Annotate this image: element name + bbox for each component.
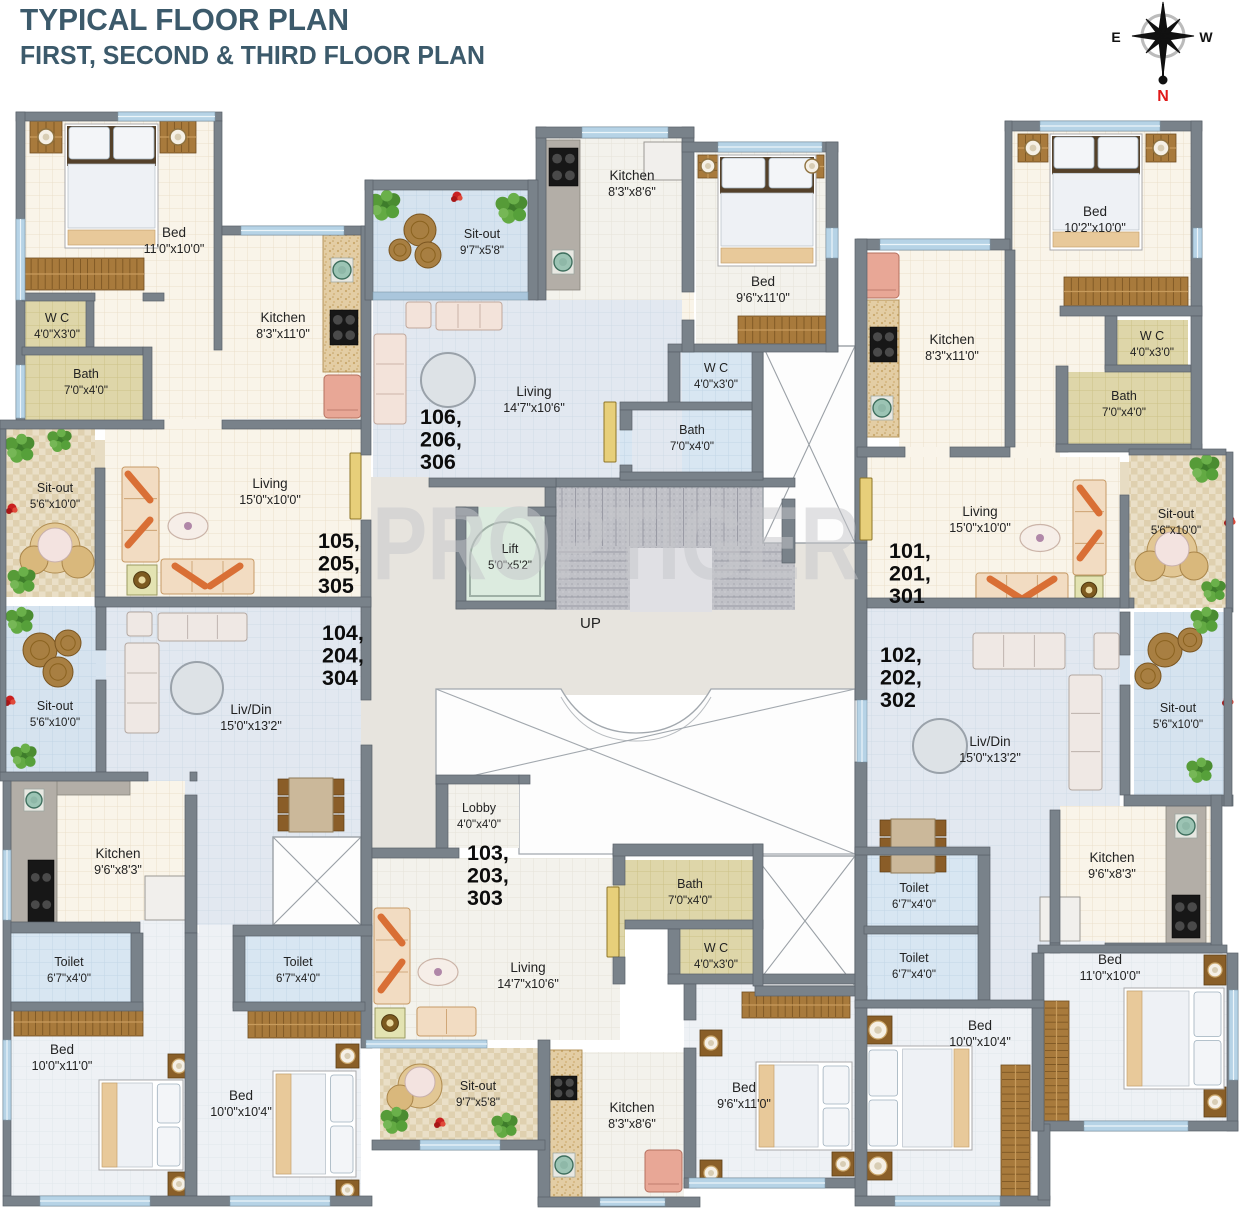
svg-text:15'0"x13'2": 15'0"x13'2"	[709, 791, 771, 805]
svg-text:4'0"x3'0": 4'0"x3'0"	[694, 379, 738, 391]
svg-text:9'6"x8'3": 9'6"x8'3"	[94, 863, 142, 877]
svg-text:Bed: Bed	[1098, 952, 1122, 967]
svg-text:9'6"x11'0": 9'6"x11'0"	[736, 291, 790, 305]
svg-text:103,: 103,	[467, 841, 509, 865]
svg-text:Kitchen: Kitchen	[609, 168, 654, 183]
svg-text:10'2"x10'0": 10'2"x10'0"	[1064, 221, 1126, 235]
svg-text:Bed: Bed	[162, 225, 186, 240]
svg-text:N: N	[1157, 88, 1169, 105]
svg-text:101,: 101,	[889, 539, 931, 563]
svg-text:W: W	[1199, 29, 1213, 45]
svg-text:15'0"x13'2": 15'0"x13'2"	[959, 751, 1021, 765]
svg-text:8'3"x8'6": 8'3"x8'6"	[608, 1117, 656, 1131]
svg-text:6'7"x4'0": 6'7"x4'0"	[892, 969, 936, 981]
svg-text:7'0"x4'0": 7'0"x4'0"	[1102, 407, 1146, 419]
svg-text:Toilet: Toilet	[899, 951, 929, 965]
svg-text:7'0"x4'0": 7'0"x4'0"	[64, 385, 108, 397]
svg-text:W C: W C	[1140, 329, 1164, 343]
svg-text:4'0"x3'0": 4'0"x3'0"	[694, 959, 738, 971]
svg-text:9'6"x11'0": 9'6"x11'0"	[717, 1097, 771, 1111]
svg-text:W C: W C	[704, 941, 728, 955]
svg-text:4'0"x3'0": 4'0"x3'0"	[1130, 347, 1174, 359]
svg-text:206,: 206,	[420, 428, 462, 452]
svg-text:9'7"x5'8": 9'7"x5'8"	[460, 245, 504, 257]
svg-text:106,: 106,	[420, 405, 462, 429]
svg-text:Liv/Din: Liv/Din	[719, 774, 760, 789]
svg-text:9'6"x8'3": 9'6"x8'3"	[1088, 867, 1136, 881]
svg-text:Kitchen: Kitchen	[260, 310, 305, 325]
svg-text:303: 303	[467, 886, 503, 910]
svg-text:15'0"x10'0": 15'0"x10'0"	[949, 521, 1011, 535]
svg-text:Toilet: Toilet	[54, 955, 84, 969]
svg-text:15'0"x10'0": 15'0"x10'0"	[239, 493, 301, 507]
svg-text:Kitchen: Kitchen	[929, 332, 974, 347]
svg-text:Living: Living	[252, 476, 287, 491]
svg-text:Bed: Bed	[50, 1042, 74, 1057]
svg-text:6'7"x4'0": 6'7"x4'0"	[47, 973, 91, 985]
svg-text:Toilet: Toilet	[899, 881, 929, 895]
svg-text:104,: 104,	[322, 621, 364, 645]
svg-text:5'6"x10'0": 5'6"x10'0"	[30, 499, 80, 511]
svg-text:7'0"x4'0": 7'0"x4'0"	[668, 895, 712, 907]
svg-text:TYPICAL FLOOR PLAN: TYPICAL FLOOR PLAN	[20, 2, 349, 37]
svg-text:Kitchen: Kitchen	[95, 846, 140, 861]
svg-text:8'3"x11'0": 8'3"x11'0"	[925, 349, 979, 363]
svg-text:8'3"x11'0": 8'3"x11'0"	[256, 327, 310, 341]
svg-text:Bed: Bed	[968, 1018, 992, 1033]
svg-text:11'0"x10'0": 11'0"x10'0"	[1080, 969, 1141, 983]
svg-text:Bed: Bed	[1083, 204, 1107, 219]
svg-text:4'0"x4'0": 4'0"x4'0"	[457, 819, 501, 831]
svg-text:6'7"x4'0": 6'7"x4'0"	[276, 973, 320, 985]
svg-text:Liv/Din: Liv/Din	[969, 734, 1010, 749]
svg-text:304: 304	[322, 666, 358, 690]
svg-text:Bed: Bed	[732, 1080, 756, 1095]
svg-text:FIRST, SECOND & THIRD FLOOR PL: FIRST, SECOND & THIRD FLOOR PLAN	[20, 42, 485, 70]
svg-text:Bath: Bath	[679, 423, 705, 437]
svg-text:Sit-out: Sit-out	[37, 699, 74, 713]
svg-text:105,: 105,	[318, 529, 360, 553]
svg-text:10'0"x11'0": 10'0"x11'0"	[32, 1059, 93, 1073]
svg-text:Toilet: Toilet	[283, 955, 313, 969]
svg-text:306: 306	[420, 450, 456, 474]
svg-text:201,: 201,	[889, 562, 931, 586]
svg-text:10'0"x10'4": 10'0"x10'4"	[210, 1105, 272, 1119]
svg-text:302: 302	[880, 688, 916, 712]
svg-text:Bath: Bath	[73, 367, 99, 381]
svg-text:15'0"x13'2": 15'0"x13'2"	[220, 719, 282, 733]
svg-text:E: E	[1111, 29, 1120, 45]
svg-text:14'7"x10'6": 14'7"x10'6"	[503, 401, 565, 415]
svg-text:Bed: Bed	[751, 274, 775, 289]
svg-text:203,: 203,	[467, 864, 509, 888]
svg-text:Kitchen: Kitchen	[609, 1100, 654, 1115]
svg-text:5'6"x10'0": 5'6"x10'0"	[1151, 525, 1201, 537]
svg-text:204,: 204,	[322, 644, 364, 668]
svg-text:Living: Living	[510, 960, 545, 975]
svg-text:Living: Living	[962, 504, 997, 519]
svg-text:Liv/Din: Liv/Din	[230, 702, 271, 717]
svg-text:102,: 102,	[880, 643, 922, 667]
svg-text:Kitchen: Kitchen	[1089, 850, 1134, 865]
svg-text:Lobby: Lobby	[462, 801, 497, 815]
svg-text:5'6"x10'0": 5'6"x10'0"	[1153, 719, 1203, 731]
svg-text:202,: 202,	[880, 666, 922, 690]
svg-text:Bath: Bath	[1111, 389, 1137, 403]
svg-text:Living: Living	[516, 384, 551, 399]
svg-text:5'6"x10'0": 5'6"x10'0"	[30, 717, 80, 729]
svg-text:Bed: Bed	[229, 1088, 253, 1103]
svg-text:9'7"x5'8": 9'7"x5'8"	[456, 1097, 500, 1109]
svg-text:8'3"x8'6": 8'3"x8'6"	[608, 185, 656, 199]
svg-text:PROPTIGER: PROPTIGER	[372, 486, 860, 602]
svg-text:11'0"x10'0": 11'0"x10'0"	[144, 242, 205, 256]
svg-text:Bath: Bath	[677, 877, 703, 891]
svg-text:305: 305	[318, 574, 354, 598]
svg-text:6'7"x4'0": 6'7"x4'0"	[892, 899, 936, 911]
svg-text:301: 301	[889, 584, 925, 608]
svg-text:W C: W C	[45, 311, 69, 325]
svg-text:7'0"x4'0": 7'0"x4'0"	[670, 441, 714, 453]
svg-text:W C: W C	[704, 361, 728, 375]
svg-text:10'0"x10'4": 10'0"x10'4"	[949, 1035, 1011, 1049]
svg-text:Sit-out: Sit-out	[1160, 701, 1197, 715]
svg-text:14'7"x10'6": 14'7"x10'6"	[497, 977, 559, 991]
svg-text:Sit-out: Sit-out	[464, 227, 501, 241]
svg-text:Sit-out: Sit-out	[37, 481, 74, 495]
svg-text:205,: 205,	[318, 552, 360, 576]
svg-text:UP: UP	[580, 615, 601, 632]
svg-text:Sit-out: Sit-out	[1158, 507, 1195, 521]
svg-text:Sit-out: Sit-out	[460, 1079, 497, 1093]
svg-text:4'0"X3'0": 4'0"X3'0"	[34, 329, 80, 341]
